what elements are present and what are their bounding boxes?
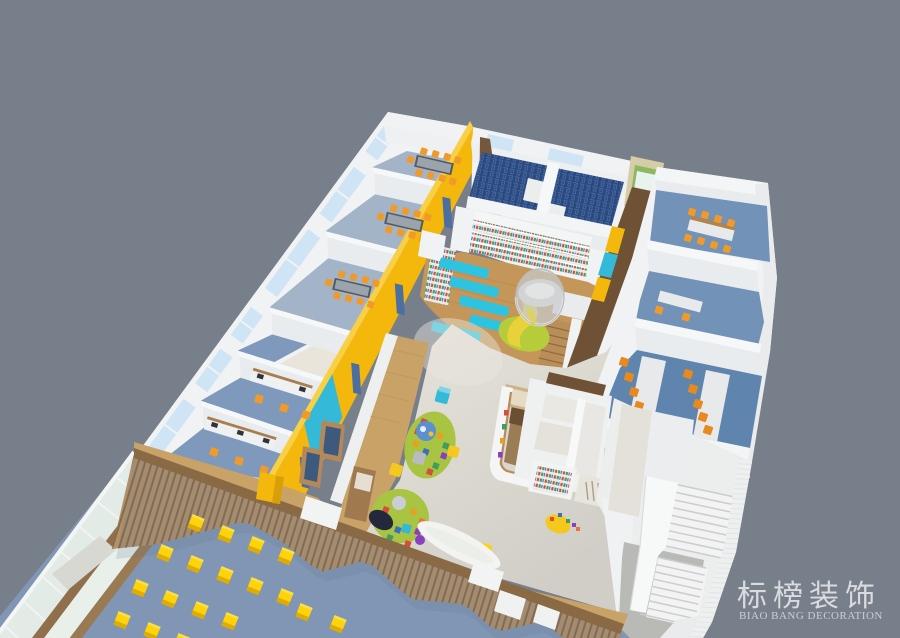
svg-text:标榜装饰: 标榜装饰	[737, 580, 881, 613]
svg-text:BIAO BANG DECORATION: BIAO BANG DECORATION	[739, 610, 883, 622]
